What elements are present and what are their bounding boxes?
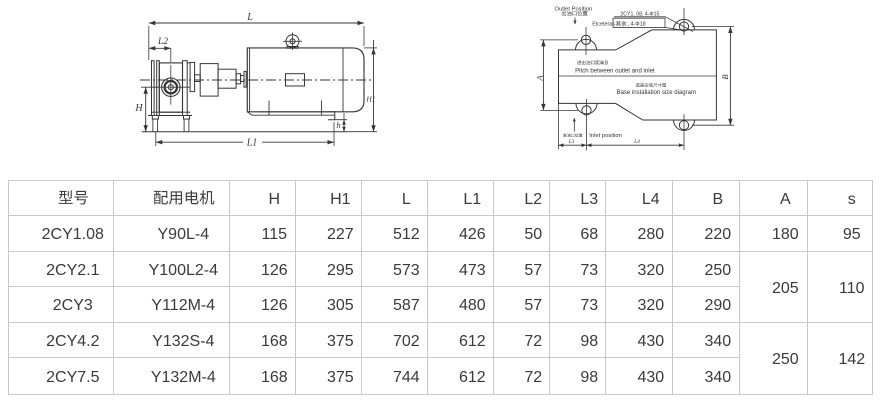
svg-text:Inlet position: Inlet position: [589, 133, 622, 139]
svg-text:, 4-Φ18: , 4-Φ18: [628, 22, 646, 28]
svg-text:B: B: [605, 60, 609, 66]
svg-text:Pitch between outlet and inlet: Pitch between outlet and inlet: [575, 68, 655, 75]
svg-text:H: H: [134, 103, 143, 114]
svg-text:Etceteras: Etceteras: [592, 22, 615, 28]
svg-text:h: h: [336, 120, 340, 130]
svg-text:H1: H1: [365, 95, 375, 104]
svg-text:B: B: [720, 74, 730, 79]
svg-text:L4: L4: [633, 138, 640, 145]
svg-text:L2: L2: [157, 37, 168, 47]
svg-text:L: L: [246, 12, 253, 23]
svg-text:Base installation size diagram: Base installation size diagram: [617, 90, 696, 96]
svg-text:L1: L1: [246, 138, 258, 149]
svg-text:A: A: [535, 75, 545, 82]
svg-text:L3: L3: [568, 139, 575, 145]
